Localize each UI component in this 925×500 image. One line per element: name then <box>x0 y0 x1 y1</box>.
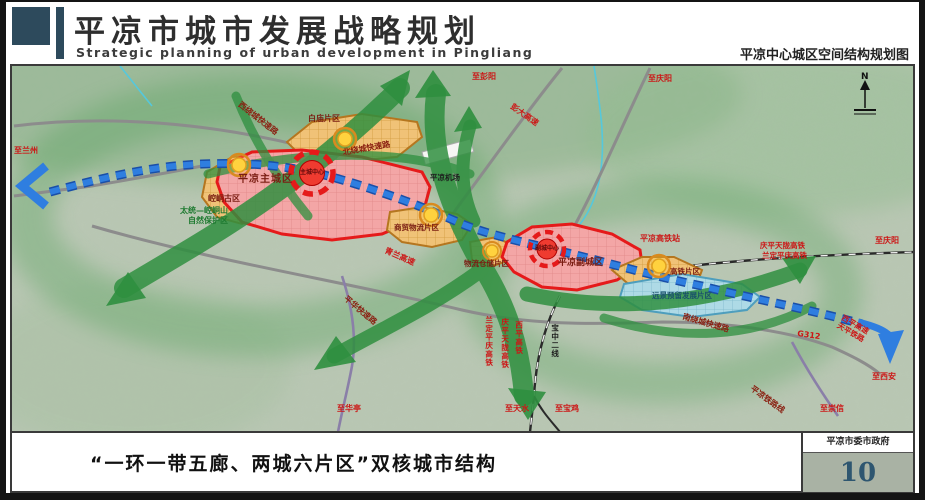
label-landing-pingqing-hsr: 兰定平庆高铁 <box>762 252 807 261</box>
label-main-city-center: 主城中心 <box>298 170 326 177</box>
map-canvas: N 至兰州 至彭阳 至庆阳 至庆阳 庆平天陇高铁 兰定平庆高铁 彭大高速 北绕城… <box>10 64 915 433</box>
label-kongtong-district: 崆峒古区 <box>208 194 240 203</box>
header: 平凉市城市发展战略规划 Strategic planning of urban … <box>6 2 919 64</box>
agency-name: 平凉市委市政府 <box>803 433 913 453</box>
label-to-chongxin: 至崇信 <box>820 404 844 413</box>
planning-document-page: 平凉市城市发展战略规划 Strategic planning of urban … <box>0 0 925 500</box>
label-hsr-district: 高铁片区 <box>670 268 700 277</box>
plan-caption: “一环一带五廊、两城六片区”双核城市结构 <box>90 449 497 476</box>
page-subtitle: Strategic planning of urban development … <box>76 45 533 60</box>
label-to-pengyang: 至彭阳 <box>472 72 496 81</box>
label-east-city-center: 副城中心 <box>535 246 559 253</box>
label-nature-reserve-line2: 自然保护区 <box>188 216 228 225</box>
label-to-xian: 至西安 <box>872 372 896 381</box>
label-airport: 平凉机场 <box>430 174 460 183</box>
label-warehouse-district: 物流仓储片区 <box>464 260 509 269</box>
label-landing-pingqing-hsr-vertical: 兰定平庆高铁 <box>484 316 493 367</box>
label-baimiao-district: 白庙片区 <box>308 114 340 123</box>
title-block: 平凉市委市政府 10 <box>801 433 913 491</box>
label-qingping-tianlong-hsr-vertical: 庆平天陇高铁 <box>500 318 509 369</box>
label-trade-logistics-district: 商贸物流片区 <box>394 224 439 233</box>
north-arrow-icon: N <box>840 74 890 120</box>
label-to-tianshui: 至天水 <box>505 404 529 413</box>
map-sheet-title: 平凉中心城区空间结构规划图 <box>740 44 909 63</box>
label-east-city: 平凉副城区 <box>558 258 603 268</box>
label-xiping-hsr: 西平高铁 <box>514 321 523 355</box>
logo-square <box>12 7 50 45</box>
footer: “一环一带五廊、两城六片区”双核城市结构 平凉市委市政府 10 <box>10 433 915 493</box>
label-to-baoji: 至宝鸡 <box>555 404 579 413</box>
label-nature-reserve-line1: 太统—崆峒山 <box>180 206 228 215</box>
label-to-qingyang-east: 至庆阳 <box>875 236 899 245</box>
label-to-huating: 至华亭 <box>337 404 361 413</box>
label-main-city: 平凉主城区 <box>238 174 293 186</box>
label-qingping-tianlong-hsr: 庆平天陇高铁 <box>760 242 805 251</box>
label-to-qingyang-north: 至庆阳 <box>648 74 672 83</box>
label-reserve-district: 远景预留发展片区 <box>652 292 712 301</box>
page-number: 10 <box>803 453 913 492</box>
label-hsr-station: 平凉高铁站 <box>640 234 680 243</box>
label-baozhong-line2: 宝中二线 <box>550 324 559 358</box>
label-to-lanzhou: 至兰州 <box>14 146 38 155</box>
logo-bar <box>56 7 64 59</box>
